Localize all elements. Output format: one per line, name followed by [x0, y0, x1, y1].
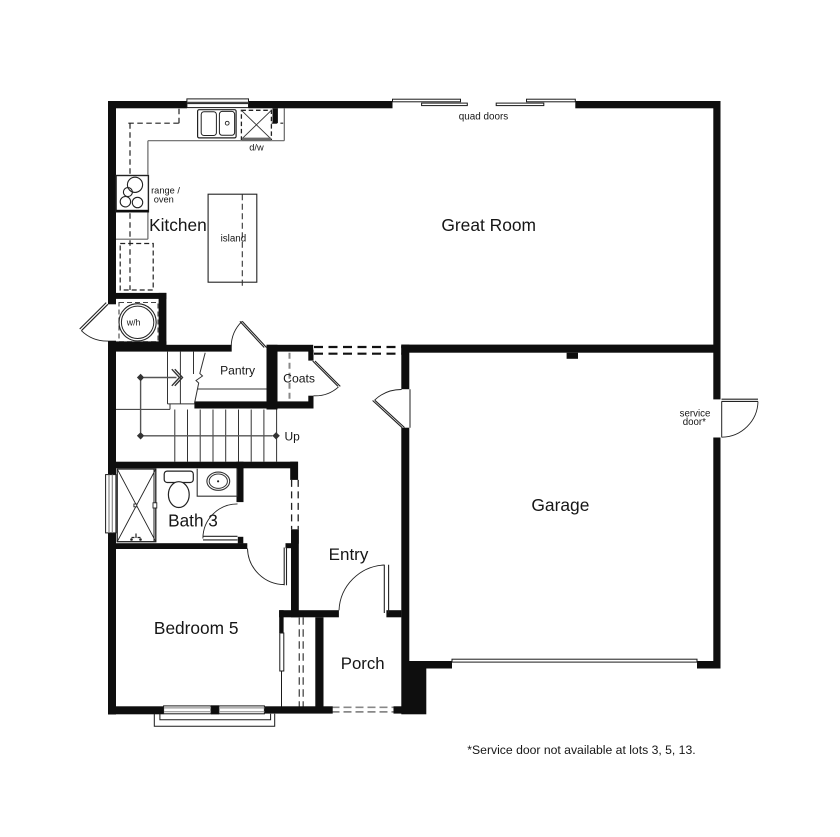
svg-text:d/w: d/w: [249, 142, 264, 152]
svg-text:Great Room: Great Room: [441, 215, 536, 235]
svg-text:door*: door*: [683, 417, 706, 428]
svg-text:Coats: Coats: [283, 372, 315, 386]
svg-text:Kitchen: Kitchen: [149, 215, 207, 235]
svg-text:oven: oven: [154, 195, 174, 205]
svg-text:Bath 3: Bath 3: [168, 510, 218, 530]
svg-text:w/h: w/h: [126, 318, 141, 328]
svg-text:Bedroom 5: Bedroom 5: [154, 618, 239, 638]
svg-text:Entry: Entry: [329, 545, 369, 564]
svg-text:quad doors: quad doors: [459, 112, 508, 123]
svg-text:Up: Up: [285, 429, 301, 443]
svg-text:island: island: [221, 234, 247, 245]
svg-text:*Service door not available at: *Service door not available at lots 3, 5…: [467, 743, 695, 757]
svg-text:Garage: Garage: [531, 495, 589, 515]
svg-text:Pantry: Pantry: [220, 363, 256, 377]
svg-text:Porch: Porch: [341, 654, 385, 673]
